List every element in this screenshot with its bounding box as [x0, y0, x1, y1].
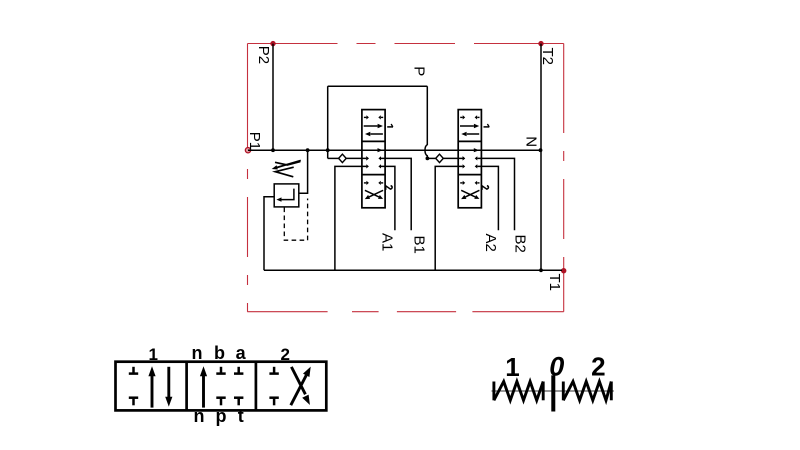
svg-text:n: n	[192, 343, 203, 363]
svg-text:B2: B2	[511, 235, 528, 253]
svg-text:t: t	[238, 406, 244, 426]
svg-text:N: N	[522, 136, 539, 147]
svg-text:P1: P1	[246, 132, 263, 150]
svg-text:n: n	[194, 406, 205, 426]
svg-text:1: 1	[505, 352, 519, 382]
svg-text:P2: P2	[255, 46, 272, 64]
svg-text:b: b	[214, 343, 225, 363]
svg-text:p: p	[216, 406, 227, 426]
svg-text:A2: A2	[482, 234, 499, 252]
svg-text:a: a	[236, 343, 247, 363]
svg-text:2: 2	[280, 345, 289, 364]
svg-text:0: 0	[549, 352, 564, 382]
svg-text:A1: A1	[379, 233, 396, 251]
svg-text:2: 2	[591, 351, 605, 381]
svg-text:T1: T1	[546, 274, 563, 292]
svg-text:B1: B1	[410, 236, 427, 254]
svg-text:1: 1	[148, 345, 157, 364]
svg-text:P: P	[411, 66, 428, 76]
